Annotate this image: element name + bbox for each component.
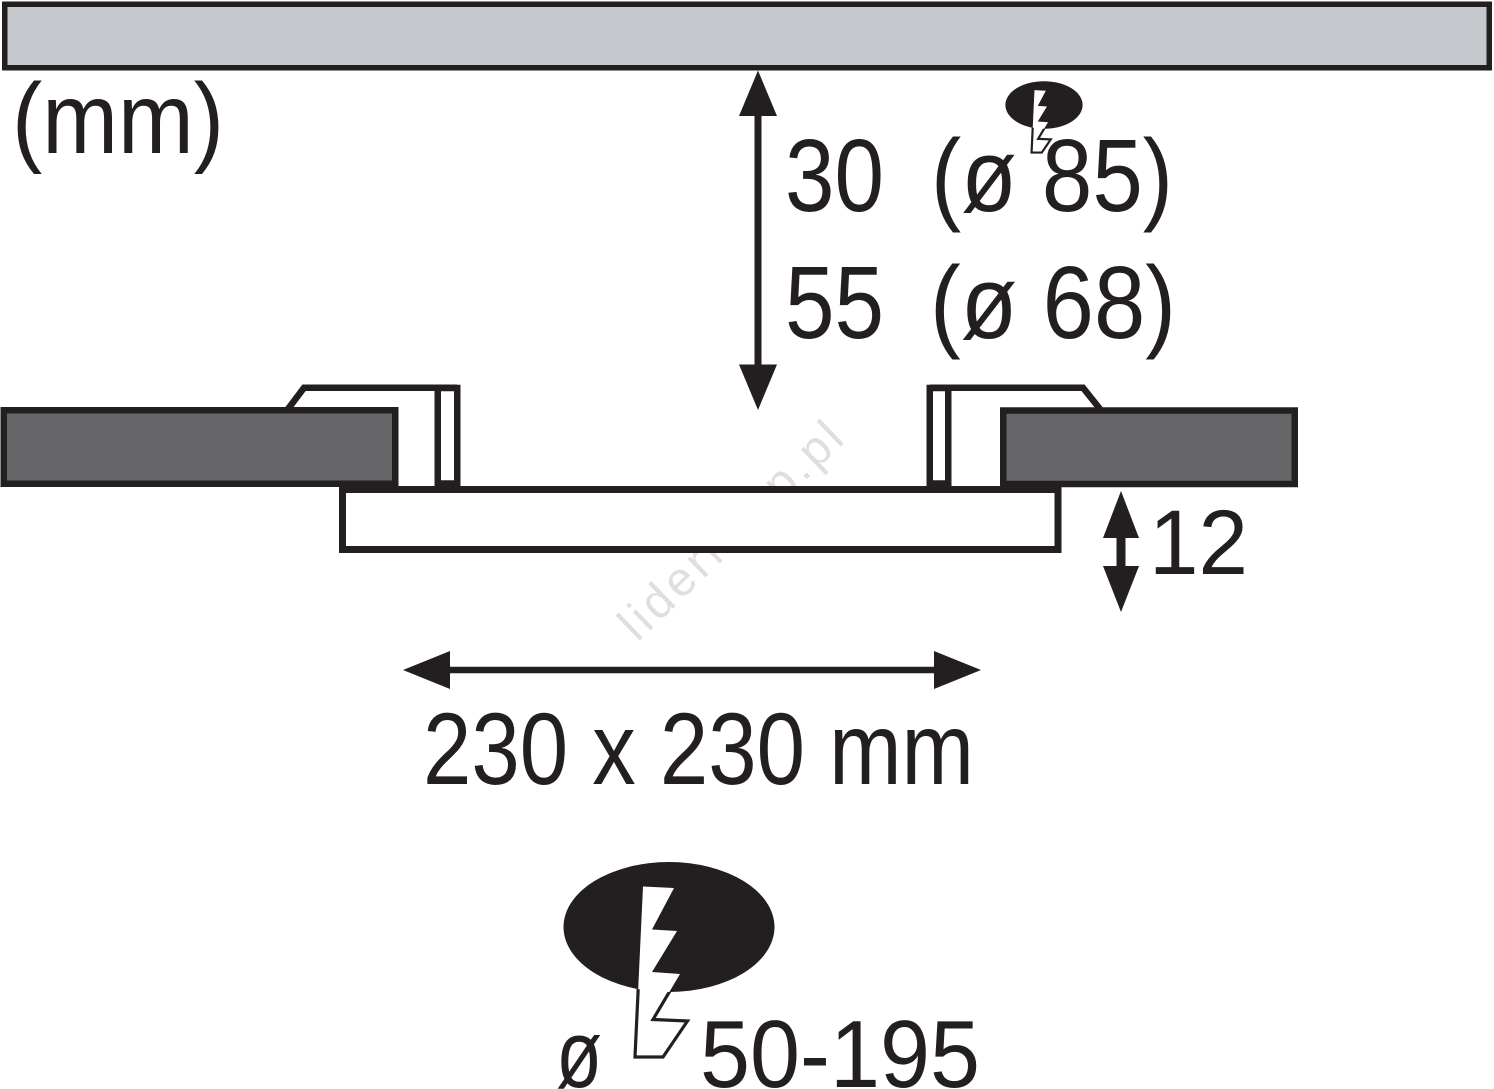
- svg-text:55: 55: [785, 245, 884, 360]
- svg-text:(ø 85): (ø 85): [931, 118, 1173, 233]
- svg-text:50-195: 50-195: [700, 1001, 980, 1089]
- svg-text:(ø 68): (ø 68): [930, 245, 1176, 360]
- svg-text:230 x 230 mm: 230 x 230 mm: [423, 692, 974, 806]
- svg-text:ø: ø: [556, 1001, 602, 1089]
- svg-text:30: 30: [785, 118, 884, 233]
- svg-text:12: 12: [1149, 492, 1248, 594]
- svg-text:(mm): (mm): [12, 63, 224, 175]
